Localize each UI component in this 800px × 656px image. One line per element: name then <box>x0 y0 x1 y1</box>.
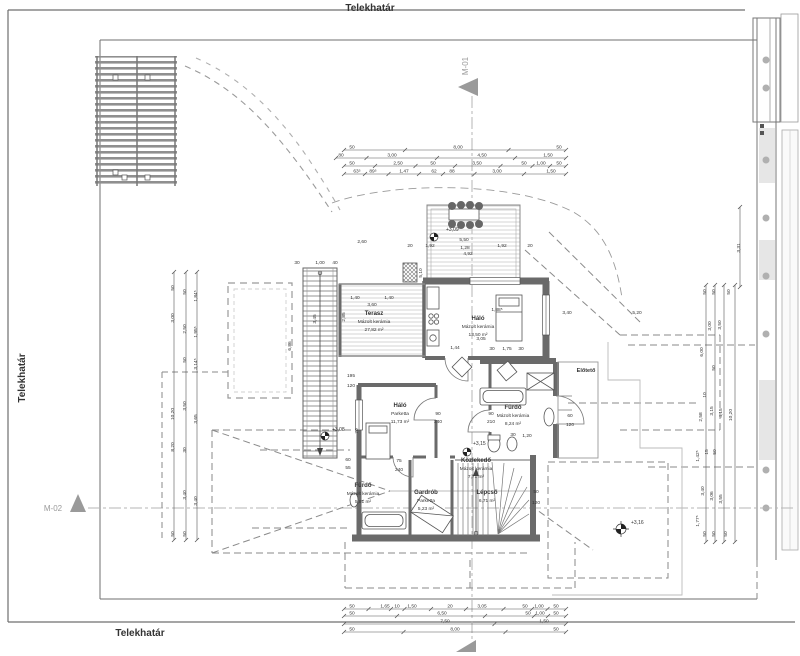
dim-label: 20 <box>447 603 453 609</box>
floor-plan-drawing: TelekhatárTelekhatárTelekhatárM-01M-02+3… <box>0 0 800 656</box>
armchair <box>497 361 517 381</box>
dim-label: 1,44 <box>450 345 460 351</box>
dim-label: 20 <box>407 243 413 249</box>
dim-label: 120 <box>566 422 574 428</box>
dim-label: 50 <box>711 365 717 371</box>
dim-label: 3,55 <box>718 494 724 504</box>
dim-label: 1,20 <box>522 433 532 439</box>
dim-label: 10 <box>702 392 708 398</box>
boundary-label-left: Telekhatár <box>17 353 28 402</box>
room-name: Előtető <box>577 368 596 374</box>
section-label-m02: M-02 <box>44 504 63 513</box>
dim-label: 1,77⁵ <box>695 515 701 526</box>
dim-label: 50 <box>182 531 188 537</box>
dim-label: 8,20 <box>170 442 176 452</box>
dim-label: 1,00 <box>315 260 325 266</box>
section-arrow-m02 <box>70 494 86 512</box>
dim-label: 3,00 <box>170 313 176 323</box>
floor-plan-sheet: TelekhatárTelekhatárTelekhatárM-01M-02+3… <box>0 0 800 656</box>
dim-label: 1,50 <box>543 152 553 158</box>
dim-label: 50 <box>521 160 527 166</box>
dim-label: 3,40 <box>182 490 188 500</box>
north-triangle <box>456 640 476 652</box>
room-area: 11,73 m² <box>391 419 410 425</box>
dim-label: 8,00 <box>453 144 463 150</box>
dim-label: 50 <box>553 610 559 616</box>
dim-label: 50 <box>525 610 531 616</box>
dim-label: 3,40 <box>562 310 572 316</box>
dim-label: 2,50 <box>182 324 188 334</box>
dim-label: 6,00 <box>699 347 705 357</box>
chimney <box>403 263 417 282</box>
level-entry: +3,15 <box>473 441 486 447</box>
dim-label: 1,40 <box>350 295 360 301</box>
dim-label: 60 <box>345 457 351 463</box>
dim-label: 50 <box>522 603 528 609</box>
dim-label: 3,40 <box>700 486 706 496</box>
dim-label: 3,06 <box>709 491 715 501</box>
dim-label: 1,88⁵ <box>491 307 502 313</box>
dim-label: 50 <box>723 531 729 537</box>
level-roof: +3,16 <box>631 520 644 526</box>
level-symbol <box>463 448 471 456</box>
dim-label: 75 <box>396 458 402 464</box>
dim-label: 210 <box>487 419 495 425</box>
dim-label: 1,50 <box>407 603 417 609</box>
dim-label: 1,92 <box>497 243 507 249</box>
dim-label: 3,50 <box>182 401 188 411</box>
dim-label: 90 <box>488 411 494 417</box>
dim-label: 20 <box>527 243 533 249</box>
dim-label: 50 <box>711 531 717 537</box>
dim-label: 1,40 <box>384 295 394 301</box>
dim-label: 50 <box>553 603 559 609</box>
dim-label: 50 <box>556 160 562 166</box>
dim-label: 2,50 <box>393 160 403 166</box>
kitchen-unit <box>427 287 439 309</box>
pergola-deck <box>95 56 177 186</box>
dim-label: 240 <box>395 467 403 473</box>
dim-label: 3,00 <box>707 321 713 331</box>
room-name: Fürdő <box>355 483 372 489</box>
dim-label: 90 <box>435 411 441 417</box>
dim-label: 50 <box>349 160 355 166</box>
dim-label: 55 <box>345 465 351 471</box>
dim-label: 2,60 <box>357 239 367 245</box>
dim-label: 50 <box>182 289 188 295</box>
dim-label: 10,20 <box>170 408 176 420</box>
room-area: 5,81 m² <box>355 499 372 505</box>
dim-label: 50 <box>349 144 355 150</box>
dim-label: 30 <box>489 346 495 352</box>
dim-label: 1,92 <box>425 243 435 249</box>
level-lower-deck: +3,08 <box>332 427 345 433</box>
terrace-deck <box>339 263 425 356</box>
dim-label: 5,10 <box>418 268 424 278</box>
dim-label: 1,50 <box>546 168 556 174</box>
dim-label: 3,50 <box>472 160 482 166</box>
dim-label: 63⁵ <box>353 168 360 174</box>
dim-label: 80 <box>338 152 344 158</box>
dim-label: 10 <box>394 603 400 609</box>
bidet <box>507 437 517 451</box>
dim-label: 1,00 <box>534 603 544 609</box>
dim-label: 120 <box>347 383 355 389</box>
dim-label: 30 <box>182 447 188 453</box>
room-material: Mázolt kerámia <box>460 466 493 472</box>
level-upper-terrace: +3,09 <box>446 227 459 233</box>
dim-label: 30 <box>518 346 524 352</box>
dim-label: 3,65 <box>193 414 199 424</box>
pool-outline <box>228 283 292 398</box>
room-area: 8,24 m² <box>505 421 522 427</box>
dim-label: 60 <box>567 413 573 419</box>
dim-label: 3,15 <box>709 406 715 416</box>
dim-label: 50 <box>553 626 559 632</box>
room-material: Parketta <box>417 498 435 504</box>
room-material: Mázolt kerámia <box>358 319 391 325</box>
dim-label: 50 <box>182 357 188 363</box>
dim-label: 4,50 <box>477 152 487 158</box>
room-area: 7,71 m² <box>468 474 485 480</box>
dim-label: 2,58 <box>698 412 704 422</box>
level-symbol <box>430 233 438 241</box>
dining-table <box>449 209 479 220</box>
dim-label: 195 <box>347 373 355 379</box>
room-material: Parketta <box>391 411 409 417</box>
dim-label: 70 <box>354 428 360 434</box>
dim-label: 3,05 <box>476 336 486 342</box>
room-name: Fürdő <box>505 405 522 411</box>
dim-label: 50 <box>430 160 436 166</box>
dim-label: 4,15 <box>718 408 724 418</box>
room-area: 6,71 m² <box>479 498 496 504</box>
armchair <box>452 357 472 377</box>
dim-label: 40 <box>332 260 338 266</box>
room-area: 27,82 m² <box>365 327 384 333</box>
upper-terrace-deck <box>427 201 520 283</box>
roof-outlines <box>212 232 757 599</box>
dim-label: 50 <box>712 449 718 455</box>
dim-label: 1,00 <box>536 160 546 166</box>
section-arrow-m01 <box>458 78 478 96</box>
dim-label: 1,84⁵ <box>193 290 199 301</box>
dim-label: 50 <box>556 144 562 150</box>
dim-label: 1,00 <box>535 610 545 616</box>
dim-label: 1,42⁵ <box>695 450 701 461</box>
room-material: Mázolt kerámia <box>347 491 380 497</box>
dim-label: 50 <box>533 489 539 495</box>
dim-label: 10,20 <box>728 409 734 421</box>
dim-label: 50 <box>702 531 708 537</box>
level-symbol <box>321 432 329 440</box>
dim-label: 1,95⁵ <box>193 326 199 337</box>
dim-label: 62 <box>431 168 437 174</box>
dim-label: 30 <box>510 432 516 438</box>
dim-label: 1,65 <box>380 603 390 609</box>
dim-label: 5,20 <box>632 310 642 316</box>
dim-label: 50 <box>349 603 355 609</box>
dim-label: 8,00 <box>450 626 460 632</box>
dim-label: 5,50 <box>459 237 469 243</box>
dim-label: 3,00 <box>387 152 397 158</box>
dim-label: 50 <box>170 531 176 537</box>
dim-label: 3,00 <box>492 168 502 174</box>
dim-label: 3,14⁵ <box>193 358 199 369</box>
room-area: 5,23 m² <box>418 506 435 512</box>
room-name: Lépcső <box>476 490 497 496</box>
dim-label: 3,40 <box>193 496 199 506</box>
section-label-m01: M-01 <box>461 56 470 75</box>
dim-label: 3,60 <box>367 302 377 308</box>
dim-label: 1,28 <box>460 245 470 251</box>
room-material: Mázolt kerámia <box>497 413 530 419</box>
dim-label: 120 <box>532 500 540 506</box>
dim-label: 3,31 <box>736 243 742 253</box>
dim-label: 1,50 <box>539 618 549 624</box>
dim-label: 15 <box>704 449 710 455</box>
dim-label: 50 <box>702 289 708 295</box>
dim-label: 50 <box>349 626 355 632</box>
neighbor-fence <box>753 14 798 560</box>
boundary-label-top: Telekhatár <box>345 3 394 14</box>
room-name: Háló <box>393 403 406 409</box>
washbasin <box>544 408 554 426</box>
level-symbol <box>613 521 629 537</box>
dim-label: 50 <box>170 285 176 291</box>
dim-label: 3,50 <box>717 320 723 330</box>
dim-label: 6,86 <box>287 341 293 351</box>
dim-label: 6,50 <box>437 610 447 616</box>
vegetation-contours <box>185 58 622 298</box>
dim-label: 7,50 <box>440 618 450 624</box>
dim-label: 89⁵ <box>369 168 376 174</box>
room-material: Mázolt kerámia <box>462 324 495 330</box>
dim-label: 1,75 <box>502 346 512 352</box>
dim-label: 50 <box>349 610 355 616</box>
dim-label: 1,47 <box>399 168 409 174</box>
dim-label: 3,45 <box>312 314 318 324</box>
room-name: Közlekedő <box>461 458 491 464</box>
room-name: Gardrób <box>414 490 438 496</box>
garden-walls <box>162 372 228 540</box>
dim-label: 2,85 <box>341 312 347 322</box>
dim-label: 30 <box>294 260 300 266</box>
room-name: Terasz <box>365 311 384 317</box>
entry-porch <box>558 362 598 458</box>
dim-label: 240 <box>434 419 442 425</box>
boundary-label-bottom: Telekhatár <box>115 628 164 639</box>
dim-label: 50 <box>711 289 717 295</box>
dim-label: 88 <box>449 168 455 174</box>
dim-label: 4,92 <box>463 251 473 257</box>
room-name: Háló <box>471 316 484 322</box>
dim-label: 50 <box>726 289 732 295</box>
dim-label: 3,05 <box>477 603 487 609</box>
